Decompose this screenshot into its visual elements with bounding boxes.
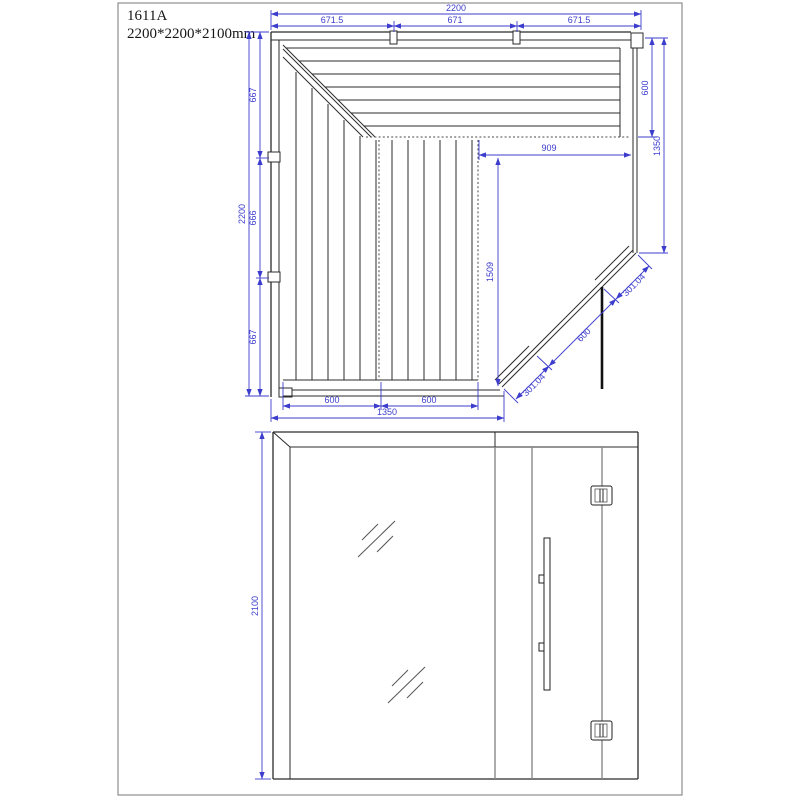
dim-bottom-total: 1350 [377,407,397,417]
left-wall-joint-2 [268,272,280,282]
plan-dim-bottom: 600 600 1350 [271,382,504,422]
plan-glass-wall-right [633,48,637,253]
sheet-border [118,3,682,795]
elev-hinge-top [591,486,612,505]
plan-door-chamfer [495,246,636,387]
elev-frame [273,432,638,779]
elev-dim-height: 2100 [250,432,271,779]
cad-drawing: 1611A 2200*2200*2100mm [0,0,800,800]
dim-top-seg-1: 671.5 [321,15,344,25]
plan-dim-top: 2200 671.5 671 671.5 [271,3,641,32]
front-elevation-view: 2100 [250,432,638,779]
dim-left-seg-2: 666 [248,210,258,225]
dim-bench-depth: 600 [640,80,650,95]
dim-floor-depth: 1509 [485,262,495,282]
elev-hinge-bottom [591,721,612,740]
dim-left-seg-1: 667 [248,87,258,102]
dim-bottom-seg-2: 600 [421,395,436,405]
elev-glass-marks [358,521,425,703]
dim-right-wall: 1350 [652,136,662,156]
dim-floor-width: 909 [541,143,556,153]
drawing-title: 1611A 2200*2200*2100mm [127,8,256,42]
dim-top-seg-2: 671 [447,15,462,25]
dim-door-glass-bottom: 301.04 [521,372,548,399]
plan-dim-door-diagonal: 301.04 600 301.04 [504,255,652,403]
dim-door-width: 600 [575,326,593,344]
plan-left-bench [283,72,478,380]
top-wall-joint-1 [390,31,397,44]
elev-roof [273,432,638,447]
dim-top-total: 2200 [446,3,466,13]
drawing-sheet: 1611A 2200*2200*2100mm [0,0,800,800]
dim-top-seg-3: 671.5 [568,15,591,25]
dim-left-seg-3: 667 [248,329,258,344]
model-number: 1611A [127,8,167,24]
plan-dim-right: 600 1350 [638,38,668,253]
corner-post-top-right [631,33,643,48]
left-wall-joint-1 [268,152,280,162]
plan-glass-wall-bottom [283,390,504,396]
plan-view: 2200 671.5 671 671.5 2200 667 666 667 [237,3,668,422]
plan-corner-bench-diagonal [283,45,375,137]
dim-door-glass-top: 301.04 [621,272,648,299]
plan-dim-left: 2200 667 666 667 [237,32,269,396]
dim-height: 2100 [250,596,260,616]
elev-door-handle [539,538,550,690]
overall-size: 2200*2200*2100mm [127,26,256,42]
plan-top-bench [286,48,620,137]
plan-dim-floor: 909 1509 [479,140,631,386]
dim-bottom-seg-1: 600 [324,395,339,405]
dim-left-total: 2200 [237,204,247,224]
top-wall-joint-2 [513,31,520,44]
